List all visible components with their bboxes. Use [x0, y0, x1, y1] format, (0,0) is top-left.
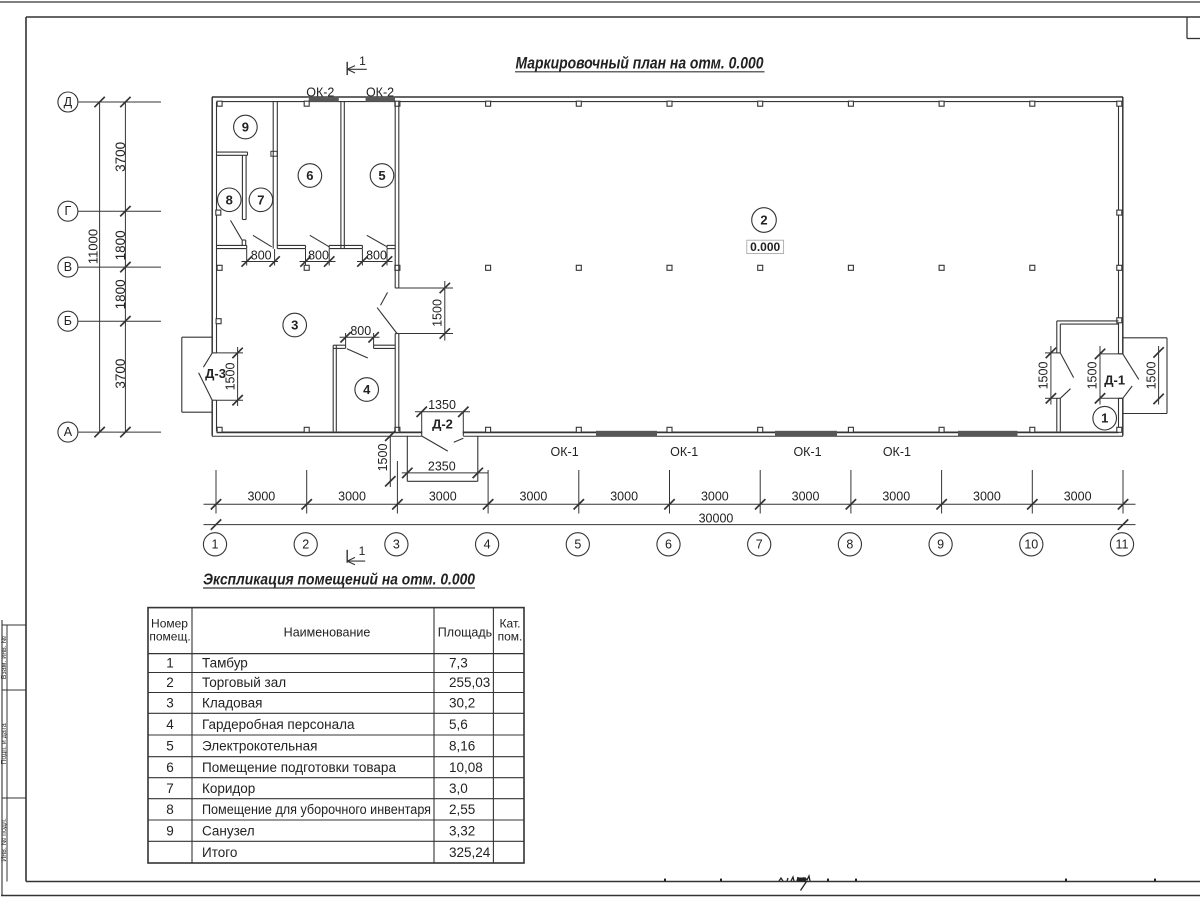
svg-text:4: 4: [484, 538, 491, 552]
svg-text:3700: 3700: [113, 142, 128, 172]
svg-text:800: 800: [350, 324, 371, 338]
svg-text:0.000: 0.000: [750, 240, 780, 254]
svg-text:7: 7: [756, 538, 763, 552]
svg-text:Д: Д: [64, 95, 73, 109]
svg-text:Торговый зал: Торговый зал: [202, 675, 286, 690]
svg-text:Площадь: Площадь: [438, 625, 492, 639]
svg-text:Д-1: Д-1: [1104, 373, 1125, 388]
svg-text:3000: 3000: [429, 490, 457, 504]
svg-text:3000: 3000: [973, 490, 1001, 504]
svg-text:3: 3: [166, 696, 174, 711]
svg-text:3700: 3700: [113, 359, 128, 389]
svg-text:325,24: 325,24: [449, 845, 491, 860]
svg-text:Итого: Итого: [202, 845, 237, 860]
svg-text:В: В: [64, 260, 72, 274]
svg-text:Гардеробная персонала: Гардеробная персонала: [202, 717, 355, 732]
svg-text:9: 9: [242, 119, 249, 134]
svg-text:1500: 1500: [1037, 362, 1051, 390]
svg-text:3,0: 3,0: [449, 781, 468, 796]
svg-text:1: 1: [1101, 411, 1108, 426]
svg-text:Д-3: Д-3: [205, 366, 226, 381]
svg-text:8: 8: [226, 192, 233, 207]
svg-text:4: 4: [166, 717, 174, 732]
svg-text:800: 800: [251, 248, 272, 262]
svg-text:Тамбур: Тамбур: [202, 656, 248, 671]
svg-text:5: 5: [574, 538, 581, 552]
svg-text:255,03: 255,03: [449, 675, 490, 690]
svg-text:3000: 3000: [247, 490, 275, 504]
svg-text:Взам. инв. №: Взам. инв. №: [1, 636, 8, 679]
svg-text:5,6: 5,6: [449, 717, 468, 732]
svg-text:2350: 2350: [428, 459, 456, 473]
svg-text:4: 4: [363, 382, 371, 397]
svg-text:3000: 3000: [882, 490, 910, 504]
svg-text:А: А: [64, 425, 73, 439]
svg-text:Маркировочный план на отм. 0.0: Маркировочный план на отм. 0.000: [516, 55, 765, 73]
svg-text:8,16: 8,16: [449, 739, 475, 754]
svg-text:1500: 1500: [1086, 362, 1100, 390]
svg-text:Номер: Номер: [151, 617, 188, 631]
svg-text:1: 1: [359, 544, 366, 558]
svg-text:Кат.: Кат.: [500, 617, 521, 631]
svg-text:Г: Г: [65, 204, 72, 218]
svg-text:ОК-1: ОК-1: [670, 445, 698, 459]
svg-text:7: 7: [257, 192, 264, 207]
svg-text:11000: 11000: [86, 229, 101, 264]
svg-text:7: 7: [166, 781, 174, 796]
svg-text:1: 1: [166, 656, 174, 671]
svg-text:ОК-2: ОК-2: [306, 85, 334, 99]
svg-text:800: 800: [308, 248, 329, 262]
svg-text:3000: 3000: [610, 490, 638, 504]
svg-text:3000: 3000: [1064, 490, 1092, 504]
svg-text:800: 800: [366, 248, 387, 262]
svg-text:6: 6: [306, 168, 313, 183]
svg-text:Помещение для уборочного инвен: Помещение для уборочного инвентаря: [202, 802, 431, 817]
svg-text:7,3: 7,3: [449, 656, 468, 671]
svg-text:1500: 1500: [1144, 362, 1158, 390]
svg-text:10,08: 10,08: [449, 760, 483, 775]
svg-text:1500: 1500: [431, 299, 445, 327]
svg-text:3: 3: [291, 317, 298, 332]
svg-text:3000: 3000: [792, 490, 820, 504]
svg-text:Экспликация помещений на отм.: Экспликация помещений на отм. 0.000: [203, 572, 475, 589]
svg-text:ОК-1: ОК-1: [883, 445, 911, 459]
svg-text:10: 10: [1024, 538, 1038, 552]
svg-text:9: 9: [937, 538, 944, 552]
svg-text:30,2: 30,2: [449, 696, 475, 711]
svg-text:Помещение подготовки товара: Помещение подготовки товара: [202, 760, 396, 775]
svg-text:Подп. и дата: Подп. и дата: [1, 723, 8, 764]
svg-text:ОК-2: ОК-2: [366, 85, 394, 99]
svg-text:Наименование: Наименование: [284, 626, 371, 640]
svg-text:Д-2: Д-2: [432, 417, 453, 432]
svg-text:2,55: 2,55: [449, 802, 475, 817]
svg-text:5: 5: [378, 168, 385, 183]
svg-text:Кладовая: Кладовая: [202, 696, 262, 711]
svg-text:пом.: пом.: [498, 630, 523, 644]
svg-text:1: 1: [212, 538, 219, 552]
svg-text:1800: 1800: [113, 230, 128, 260]
svg-text:9: 9: [166, 823, 174, 838]
svg-text:11: 11: [1116, 538, 1129, 552]
svg-text:ОК-1: ОК-1: [551, 445, 579, 459]
svg-text:Инв. № подл.: Инв. № подл.: [1, 818, 8, 862]
svg-text:3: 3: [393, 538, 400, 552]
svg-text:8: 8: [166, 802, 174, 817]
svg-text:1350: 1350: [428, 398, 456, 412]
svg-text:1: 1: [359, 54, 366, 68]
svg-text:30000: 30000: [699, 511, 734, 525]
svg-text:Электрокотельная: Электрокотельная: [202, 739, 317, 754]
svg-text:8: 8: [846, 538, 853, 552]
svg-text:3,32: 3,32: [449, 823, 475, 838]
svg-text:1500: 1500: [376, 444, 390, 472]
svg-text:помещ.: помещ.: [149, 630, 190, 644]
svg-text:Б: Б: [64, 314, 72, 328]
svg-text:5: 5: [166, 739, 174, 754]
svg-text:3000: 3000: [338, 490, 366, 504]
svg-text:2: 2: [760, 213, 767, 228]
svg-text:6: 6: [166, 760, 174, 775]
svg-text:3000: 3000: [520, 490, 548, 504]
svg-text:2: 2: [302, 538, 309, 552]
svg-text:ОК-1: ОК-1: [793, 445, 821, 459]
svg-text:Санузел: Санузел: [202, 823, 255, 838]
svg-text:Коридор: Коридор: [202, 781, 255, 796]
svg-text:2: 2: [166, 675, 174, 690]
svg-text:1800: 1800: [113, 279, 128, 309]
svg-text:3000: 3000: [701, 490, 729, 504]
svg-text:6: 6: [665, 538, 672, 552]
